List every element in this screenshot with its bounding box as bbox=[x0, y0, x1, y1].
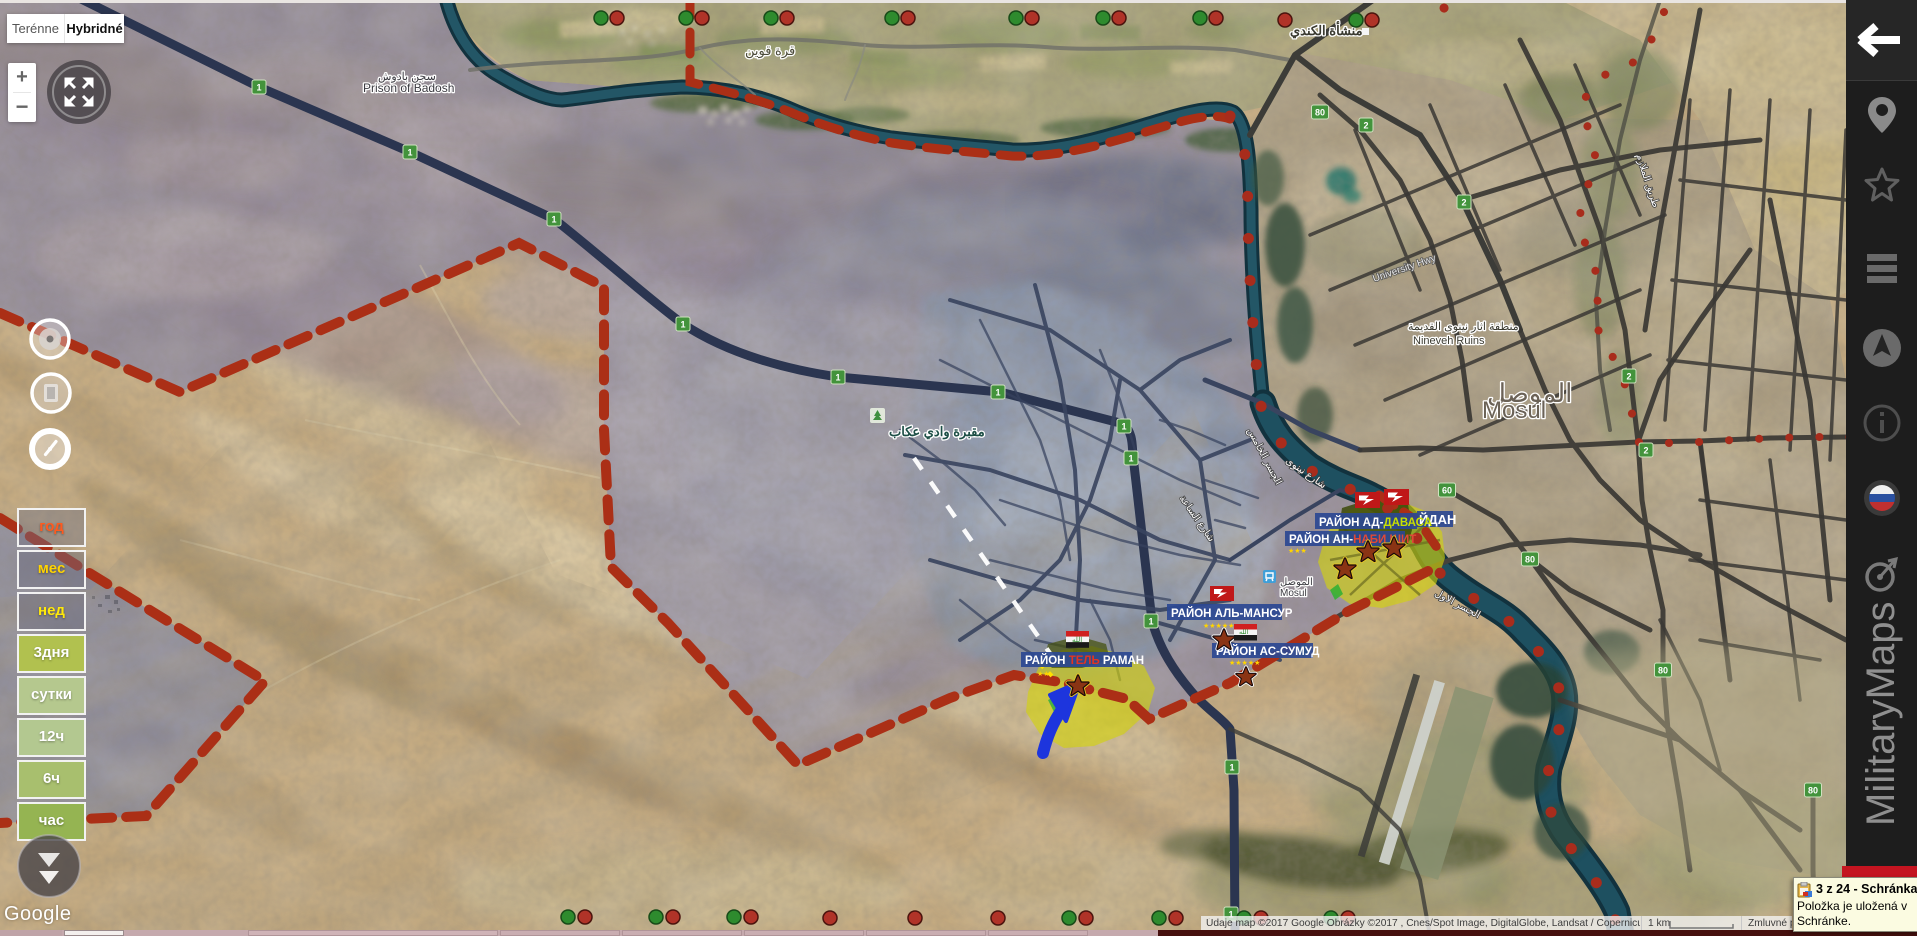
svg-text:РАЙОН АЛЬ-МАНСУР: РАЙОН АЛЬ-МАНСУР bbox=[1171, 607, 1293, 620]
svg-text:★★★★★: ★★★★★ bbox=[1203, 622, 1234, 630]
svg-text:الله: الله bbox=[1072, 636, 1082, 644]
svg-text:1: 1 bbox=[995, 388, 1000, 398]
svg-text:1: 1 bbox=[256, 83, 261, 93]
svg-text:2: 2 bbox=[1363, 121, 1368, 131]
svg-text:2: 2 bbox=[1626, 372, 1631, 382]
svg-text:★★★★★: ★★★★★ bbox=[1229, 659, 1260, 667]
svg-text:80: 80 bbox=[1808, 786, 1818, 796]
svg-text:مقبرة وادي عكاب: مقبرة وادي عكاب bbox=[889, 424, 985, 440]
svg-text:★★★: ★★★ bbox=[1288, 547, 1307, 555]
svg-text:РАЙОН ТЕЛЬ РАМАН: РАЙОН ТЕЛЬ РАМАН bbox=[1025, 654, 1144, 667]
svg-text:سجن بادوش: سجن بادوش bbox=[378, 71, 436, 83]
svg-text:80: 80 bbox=[1525, 555, 1535, 565]
svg-text:1: 1 bbox=[1148, 617, 1153, 627]
svg-text:1: 1 bbox=[407, 148, 412, 158]
svg-text:منطقة اثار نينوى القديمة: منطقة اثار نينوى القديمة bbox=[1408, 321, 1519, 333]
svg-text:Mosul: Mosul bbox=[1280, 588, 1307, 599]
svg-text:Prison of Badosh: Prison of Badosh bbox=[363, 81, 454, 95]
svg-text:قرة قوين: قرة قوين bbox=[745, 43, 795, 59]
svg-text:1: 1 bbox=[1128, 454, 1133, 464]
svg-text:1: 1 bbox=[835, 373, 840, 383]
svg-text:Mosul: Mosul bbox=[1482, 397, 1546, 424]
svg-text:الموصل: الموصل bbox=[1280, 577, 1313, 588]
svg-text:80: 80 bbox=[1658, 666, 1668, 676]
svg-text:80: 80 bbox=[1315, 108, 1325, 118]
svg-text:1: 1 bbox=[1121, 422, 1126, 432]
svg-text:1: 1 bbox=[680, 320, 685, 330]
svg-text:1: 1 bbox=[551, 215, 556, 225]
svg-text:2: 2 bbox=[1643, 446, 1648, 456]
svg-text:الله: الله bbox=[1239, 628, 1249, 636]
svg-text:Nineveh Ruins: Nineveh Ruins bbox=[1413, 335, 1485, 347]
svg-text:1: 1 bbox=[1229, 763, 1234, 773]
svg-text:★★: ★★ bbox=[1037, 670, 1050, 678]
svg-text:РАЙОН АД-ДАВАСА: РАЙОН АД-ДАВАСА bbox=[1319, 516, 1432, 529]
svg-text:60: 60 bbox=[1442, 486, 1452, 496]
svg-text:2: 2 bbox=[1461, 198, 1466, 208]
